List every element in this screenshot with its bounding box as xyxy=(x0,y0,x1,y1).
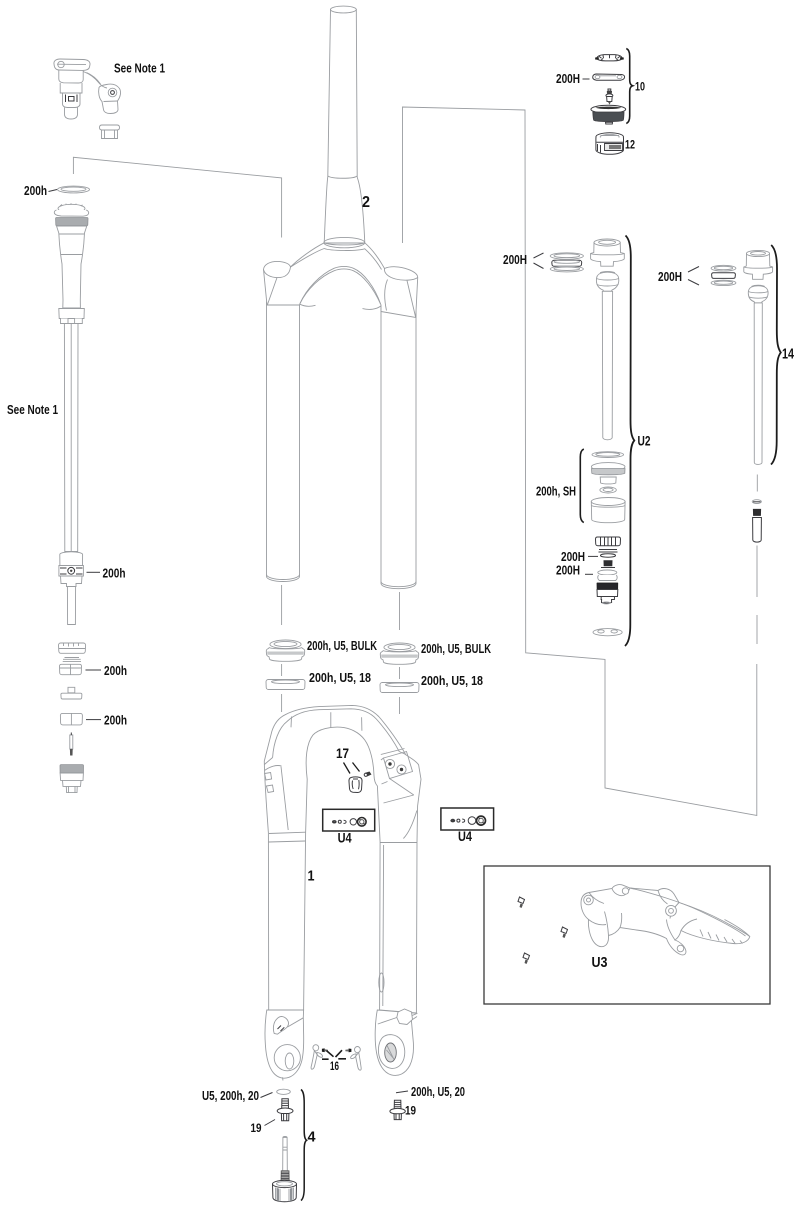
svg-text:U4: U4 xyxy=(458,828,472,844)
svg-text:14: 14 xyxy=(782,345,794,362)
svg-text:200h, U5, BULK: 200h, U5, BULK xyxy=(421,641,491,656)
svg-text:200h, SH: 200h, SH xyxy=(536,484,576,499)
svg-text:17: 17 xyxy=(336,745,349,761)
svg-text:200H: 200H xyxy=(503,252,527,267)
svg-text:19: 19 xyxy=(251,1121,262,1135)
svg-text:200H: 200H xyxy=(556,563,580,578)
svg-text:2: 2 xyxy=(362,194,370,211)
svg-text:12: 12 xyxy=(625,138,635,152)
svg-text:U3: U3 xyxy=(592,954,608,971)
svg-text:200h: 200h xyxy=(24,183,47,198)
svg-text:200H: 200H xyxy=(561,549,585,564)
svg-text:200h, U5, 18: 200h, U5, 18 xyxy=(421,673,483,688)
svg-text:200H: 200H xyxy=(556,71,580,86)
svg-text:200h, U5, 20: 200h, U5, 20 xyxy=(411,1084,465,1099)
svg-text:U2: U2 xyxy=(638,433,651,449)
svg-text:4: 4 xyxy=(308,1129,317,1146)
svg-text:U5, 200h, 20: U5, 200h, 20 xyxy=(202,1088,259,1103)
svg-text:200h, U5, 18: 200h, U5, 18 xyxy=(309,670,371,685)
svg-text:19: 19 xyxy=(405,1103,416,1117)
svg-text:16: 16 xyxy=(330,1061,339,1073)
svg-text:10: 10 xyxy=(635,79,645,93)
svg-text:See Note 1: See Note 1 xyxy=(114,61,165,76)
svg-text:200H: 200H xyxy=(658,269,682,284)
svg-text:200h: 200h xyxy=(104,663,127,678)
svg-text:U4: U4 xyxy=(338,830,352,846)
svg-text:200h: 200h xyxy=(103,565,126,580)
svg-text:1: 1 xyxy=(308,868,315,885)
svg-text:200h: 200h xyxy=(104,712,127,727)
svg-text:See Note 1: See Note 1 xyxy=(7,402,58,417)
svg-text:200h, U5, BULK: 200h, U5, BULK xyxy=(307,638,377,653)
